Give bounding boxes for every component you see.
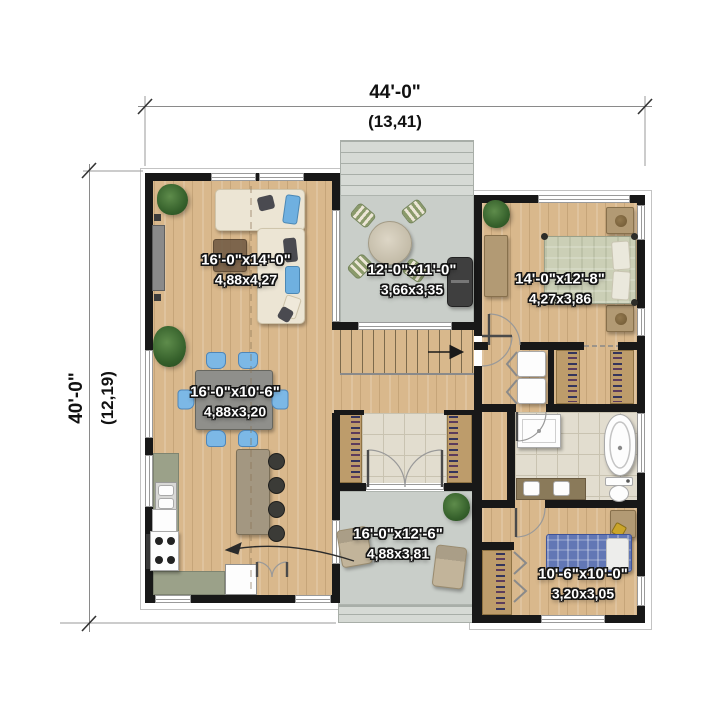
lamp <box>615 313 627 325</box>
dining-chair <box>238 430 258 447</box>
floor-plan: 44'-0" (13,41) 40'-0" (12,19) <box>0 0 720 720</box>
window <box>145 350 153 438</box>
bar-stool <box>268 525 285 542</box>
burner <box>167 537 175 545</box>
wall <box>334 410 364 415</box>
bed-pillow <box>611 270 631 300</box>
bar-stool <box>268 477 285 494</box>
shower-pan <box>522 419 556 443</box>
plant <box>157 184 188 215</box>
window <box>211 173 256 181</box>
wall <box>332 413 340 603</box>
wall <box>444 410 474 415</box>
bed-post <box>631 233 638 240</box>
wall <box>520 342 584 350</box>
plant <box>443 493 470 521</box>
sink-basin <box>158 485 174 496</box>
utility-closet <box>225 564 257 595</box>
refrigerator <box>152 509 177 532</box>
room-label-living-room: 16'-0"x14'-0" 4,88x4,27 <box>201 250 291 289</box>
toilet-bowl <box>609 485 629 502</box>
bed-pillow <box>611 240 631 270</box>
lamp <box>615 215 627 227</box>
window <box>541 615 605 623</box>
wall <box>474 195 482 336</box>
kitchen-sink <box>155 482 177 512</box>
window <box>358 322 452 330</box>
wall <box>474 404 516 412</box>
room-label-bedroom-2: 10'-6"x10'-0" 3,20x3,05 <box>538 564 628 603</box>
deck-steps <box>340 140 474 197</box>
window <box>637 308 645 336</box>
wall <box>474 500 515 508</box>
foyer-floor <box>362 413 447 483</box>
window <box>637 413 645 473</box>
vanity-sink <box>553 481 570 496</box>
sink-basin <box>158 498 174 509</box>
room-label-dining-area: 16'-0"x10'-6" 4,88x3,20 <box>190 382 280 421</box>
window <box>295 595 331 603</box>
speaker <box>154 294 161 301</box>
window <box>637 205 645 240</box>
wall <box>545 500 645 508</box>
dimension-width-imperial: 44'-0" <box>369 82 421 104</box>
window <box>145 455 153 507</box>
dresser <box>484 235 508 297</box>
wall <box>548 350 554 404</box>
dryer <box>517 378 546 404</box>
patio-steps <box>338 605 478 623</box>
closet-hangers <box>568 352 577 402</box>
tv-unit <box>152 225 165 291</box>
dimension-depth-imperial: 40'-0" <box>66 372 88 424</box>
wall <box>474 542 514 550</box>
burner <box>167 556 175 564</box>
nightstand <box>606 305 634 332</box>
closet-hangers <box>449 416 458 480</box>
washer <box>517 351 546 377</box>
bed-post <box>541 233 548 240</box>
wall <box>474 342 488 350</box>
dimension-width-metric: (13,41) <box>368 112 422 132</box>
dining-chair <box>206 352 226 369</box>
closet-hangers <box>351 416 360 480</box>
plant <box>483 200 510 228</box>
dining-chair <box>238 352 258 369</box>
nightstand <box>606 207 634 234</box>
dimension-depth-metric: (12,19) <box>98 371 118 425</box>
bar-stool <box>268 453 285 470</box>
speaker <box>154 214 161 221</box>
outdoor-table <box>368 221 412 265</box>
room-label-master-bedroom: 14'-0"x12'-8" 4,27x3,86 <box>515 269 605 308</box>
bar-stool <box>268 501 285 518</box>
room-label-front-patio: 16'-0"x12'-6" 4,88x3,81 <box>353 524 443 563</box>
kitchen-counter <box>153 571 225 595</box>
bathtub <box>604 414 636 476</box>
dimension-line-top <box>138 106 652 107</box>
burner <box>155 556 163 564</box>
window <box>259 173 304 181</box>
patio-door <box>332 210 340 322</box>
entry-door-glass <box>366 484 444 490</box>
shower <box>517 414 561 448</box>
burner <box>155 537 163 545</box>
wall <box>472 412 482 623</box>
staircase <box>340 330 474 375</box>
kitchen-island <box>236 449 270 535</box>
window <box>538 195 630 203</box>
vanity-sink <box>523 481 540 496</box>
plant <box>153 326 186 367</box>
stove <box>150 531 179 571</box>
window <box>155 595 191 603</box>
window <box>637 576 645 606</box>
bed-post <box>631 299 638 306</box>
closet-hangers <box>496 553 505 612</box>
dimension-line-left <box>89 164 90 632</box>
room-label-deck: 12'-0"x11'-0" 3,66x3,35 <box>368 260 457 299</box>
wall <box>334 483 366 491</box>
dining-chair <box>206 430 226 447</box>
wall <box>618 342 645 350</box>
wall <box>546 404 645 412</box>
closet-hangers <box>613 352 622 402</box>
wall <box>507 412 515 500</box>
